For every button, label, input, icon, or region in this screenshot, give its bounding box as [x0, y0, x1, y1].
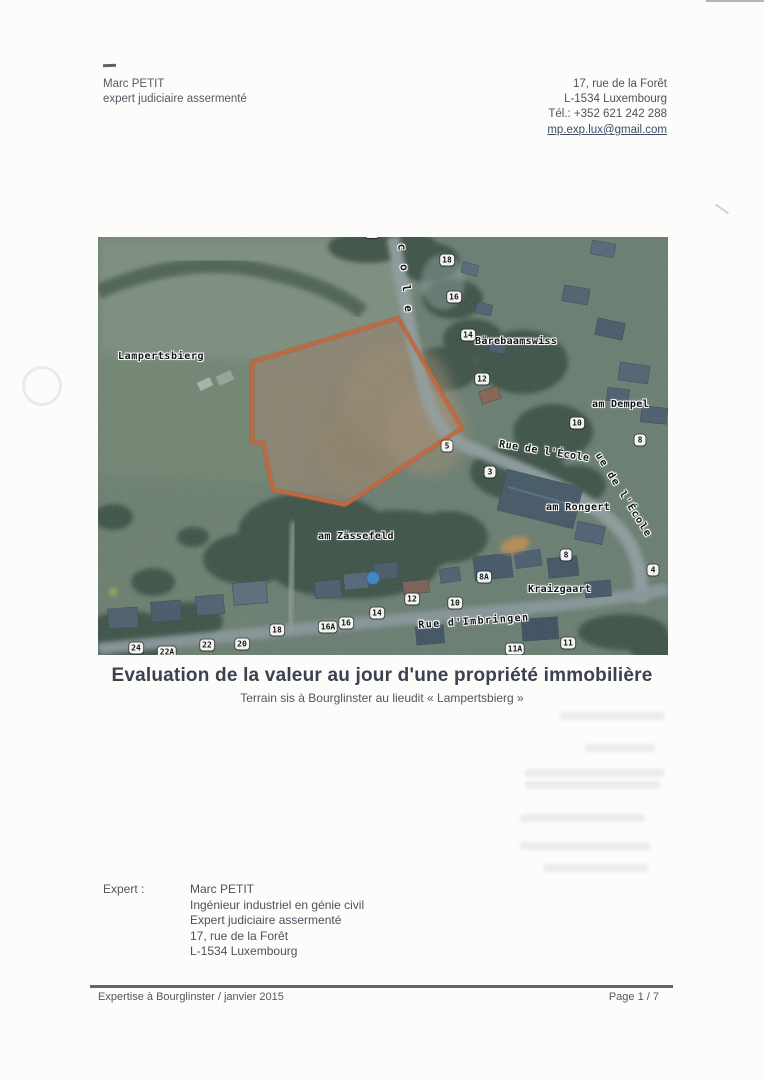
aerial-map: LampertsbiergcoleBärebaamswissam DempelR… — [98, 237, 668, 655]
map-place-label: ue de l'École — [593, 451, 654, 540]
house-number-marker: 16A — [319, 622, 337, 633]
house-number-marker: 3 — [485, 467, 496, 478]
map-place-label: Rue de l'École — [498, 439, 590, 464]
contact-phone: Tél.: +352 621 242 288 — [547, 107, 667, 122]
bleed-through-line — [520, 814, 645, 822]
map-place-label: Bärebaamswiss — [475, 336, 557, 347]
bleed-through-line — [525, 769, 665, 777]
bleed-through-line — [525, 781, 660, 789]
map-place-label: cole — [395, 243, 417, 326]
footer-document-reference: Expertise à Bourglinster / janvier 2015 — [90, 991, 284, 1003]
house-number-marker: 11A — [506, 644, 524, 655]
house-number-marker: 10 — [570, 418, 584, 429]
scan-artifact-scratch — [715, 204, 729, 215]
expert-title-line: Ingénieur industriel en génie civil — [190, 898, 364, 914]
house-number-marker: 8 — [561, 550, 572, 561]
expert-name: Marc PETIT — [190, 882, 364, 898]
bleed-through-line — [585, 744, 655, 752]
contact-email: mp.exp.lux@gmail.com — [547, 123, 667, 138]
house-number-marker: 10 — [448, 598, 462, 609]
house-number-marker: 8 — [635, 435, 646, 446]
footer-rule — [90, 985, 673, 988]
expert-street: 17, rue de la Forêt — [190, 929, 364, 945]
map-annotations: LampertsbiergcoleBärebaamswissam DempelR… — [98, 237, 668, 655]
map-place-label: am Dempel — [592, 399, 649, 410]
punch-hole-ghost — [22, 366, 62, 406]
map-place-label: am Zässefeld — [318, 531, 394, 542]
house-number-marker: 14 — [370, 608, 384, 619]
footer-page-number: Page 1 / 7 — [609, 991, 659, 1003]
page-subtitle: Terrain sis à Bourglinster au lieudit « … — [62, 691, 702, 705]
house-number-marker — [367, 237, 378, 238]
house-number-marker: 18 — [440, 255, 454, 266]
house-number-marker: 5 — [442, 441, 453, 452]
house-number-marker: 12 — [405, 594, 419, 605]
contact-street: 17, rue de la Forêt — [547, 77, 667, 92]
map-place-label: Lampertsbierg — [118, 351, 204, 362]
contact-city: L-1534 Luxembourg — [547, 92, 667, 107]
map-place-label: Rue d'Imbringen — [418, 612, 530, 631]
bleed-through-line — [520, 842, 650, 850]
house-number-marker: 22A — [158, 647, 176, 656]
house-number-marker: 8A — [477, 572, 491, 583]
house-number-marker: 24 — [129, 643, 143, 654]
house-number-marker: 16 — [339, 618, 353, 629]
bleed-through-line — [543, 864, 648, 872]
letterhead-name: Marc PETIT — [103, 77, 247, 92]
page-title: Evaluation de la valeur au jour d'une pr… — [62, 665, 702, 687]
house-number-marker: 14 — [461, 330, 475, 341]
house-number-marker: 16 — [447, 292, 461, 303]
expert-city: L-1534 Luxembourg — [190, 944, 364, 960]
scan-artifact-dash — [103, 64, 116, 67]
expert-details: Marc PETIT Ingénieur industriel en génie… — [190, 882, 364, 960]
contact-block: 17, rue de la Forêt L-1534 Luxembourg Té… — [547, 77, 667, 138]
house-number-marker: 12 — [475, 374, 489, 385]
scan-artifact-smudge — [706, 0, 764, 2]
bleed-through-line — [560, 712, 665, 720]
expert-letterhead: Marc PETIT expert judiciaire assermenté — [103, 77, 247, 107]
house-number-marker: 20 — [235, 639, 249, 650]
map-place-label: Kraizgaart — [528, 584, 591, 595]
document-page: Marc PETIT expert judiciaire assermenté … — [0, 0, 764, 1081]
expert-role-line: Expert judiciaire assermenté — [190, 913, 364, 929]
map-place-label: am Rongert — [546, 502, 610, 513]
footer: Expertise à Bourglinster / janvier 2015 … — [90, 991, 673, 1003]
house-number-marker: 4 — [648, 565, 659, 576]
house-number-marker: 18 — [270, 625, 284, 636]
house-number-marker: 22 — [200, 640, 214, 651]
house-number-marker: 11 — [561, 638, 575, 649]
letterhead-role: expert judiciaire assermenté — [103, 92, 247, 107]
expert-field-label: Expert : — [103, 882, 144, 896]
